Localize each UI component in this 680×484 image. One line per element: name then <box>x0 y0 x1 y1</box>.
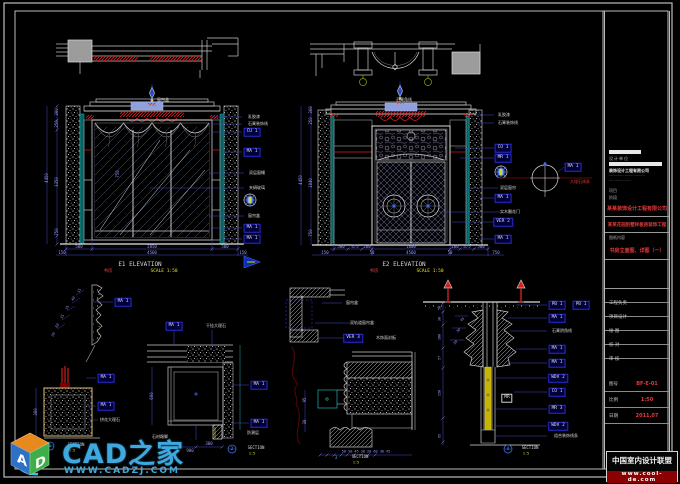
forum-watermark-url[interactable]: www.cool-de.com <box>607 471 677 483</box>
e2-elevation <box>312 82 592 245</box>
titleblock-content-caption: 图纸内容 <box>609 235 625 241</box>
e2-plan-strip <box>310 42 480 86</box>
titleblock-drawing-title: 书房立面图、详图（一） <box>605 247 669 254</box>
titleblock-separator <box>605 259 669 260</box>
drawing-linework <box>0 0 680 484</box>
titleblock-signature-row: 项目设计 <box>605 303 669 317</box>
titleblock-field-value: 2011.07 <box>625 413 669 419</box>
e1-plan-strip <box>56 38 238 78</box>
titleblock-field-label: 图号 <box>609 381 625 387</box>
titleblock-project: 某某花园别墅样板房装饰工程 <box>605 222 669 228</box>
detail-5-cornice-section <box>423 280 540 453</box>
titleblock-field-label: 日期 <box>609 413 625 419</box>
detail-5-dimensions <box>442 302 548 446</box>
forum-watermark-title: 中国室内设计联盟 <box>607 455 677 466</box>
titleblock-signature-rows: 工程负责项目设计绘 图校 对审 核 <box>605 289 669 359</box>
detail-4-jamb-section <box>318 352 415 447</box>
titleblock-signature-row: 校 对 <box>605 331 669 345</box>
titleblock-company: 某某装饰设计工程有限公司 <box>605 205 669 212</box>
titleblock-info-line: ···················· <box>609 179 645 184</box>
detail-3-dimensions <box>315 303 350 338</box>
titleblock-field: 日期2011.07 <box>605 408 669 424</box>
titleblock-info-lines: ········································… <box>609 174 645 184</box>
titleblock-separator <box>605 216 669 217</box>
cadzj-url[interactable]: WWW.CADZJ.COM <box>64 466 180 476</box>
titleblock-field: 图号BF-E-01 <box>605 376 669 392</box>
titleblock-fields: 图号BF-E-01比例1:50日期2011.07 <box>605 376 669 424</box>
titleblock-field-value: BF-E-01 <box>625 381 669 387</box>
titleblock-field-value: 1:50 <box>625 397 669 403</box>
titleblock-name-bar <box>609 162 662 166</box>
titleblock-signature-row: 绘 图 <box>605 317 669 331</box>
forum-watermark: 中国室内设计联盟 www.cool-de.com <box>606 451 678 482</box>
titleblock-signature-row: 工程负责 <box>605 289 669 303</box>
detail-3-curtain-box <box>286 288 345 444</box>
titleblock-row-label: 审 核 <box>609 357 619 362</box>
e1-elevation <box>60 84 260 268</box>
titleblock-field-label: 比例 <box>609 397 625 403</box>
titleblock-stage-lines: 项目阶段 <box>609 188 617 202</box>
titleblock-stage-line: 阶段 <box>609 195 617 202</box>
title-block: 设计单位 装饰设计工程有限公司 ························… <box>604 11 670 469</box>
titleblock-field: 比例1:50 <box>605 392 669 408</box>
detail-1-pier-section <box>44 285 103 450</box>
titleblock-separator <box>605 232 669 233</box>
cadzj-cube-logo: A D <box>6 430 56 480</box>
titleblock-logo-bar <box>609 150 641 154</box>
cadzj-watermark: A D CAD之家 WWW.CADZJ.COM <box>6 430 226 484</box>
cad-sheet: 3002504450335075075050028505001504560150… <box>0 0 680 484</box>
titleblock-signature-row: 审 核 <box>605 345 669 359</box>
titleblock-stage-line: 项目 <box>609 188 617 195</box>
